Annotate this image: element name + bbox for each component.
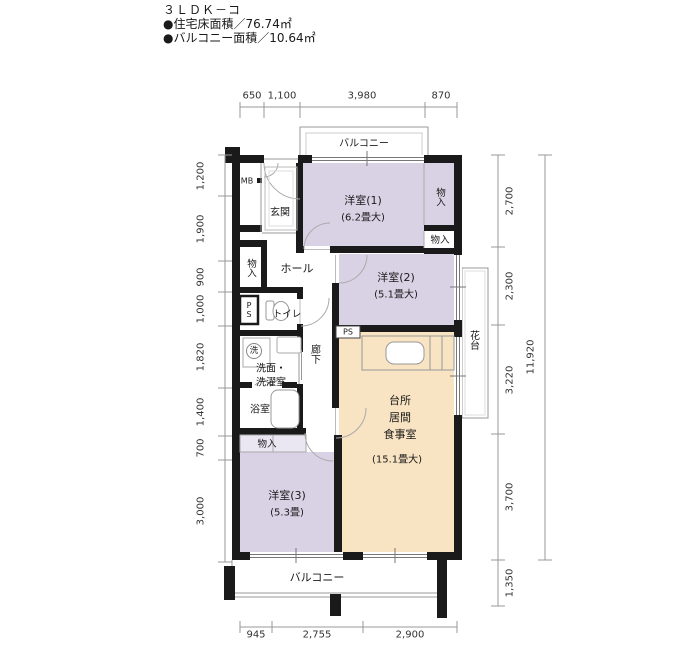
- toilet-door-arc: [301, 298, 329, 326]
- ldk-size: (15.1畳大): [372, 451, 422, 466]
- pipe-space-label: PS: [245, 301, 254, 319]
- dim-top-1100: 1,100: [268, 91, 297, 102]
- fill-ldk: [339, 332, 454, 552]
- dim-right-2700: 2,700: [505, 187, 516, 216]
- pipe-space-kitchen-label: PS: [343, 328, 353, 337]
- dim-line-right: [491, 155, 505, 606]
- balcony-pillar-right: [437, 552, 447, 618]
- wash-basin: [277, 337, 301, 353]
- dim-left-1900: 1,900: [196, 215, 207, 244]
- washer-label: 洗: [246, 343, 262, 359]
- dim-left-1400: 1,400: [196, 398, 207, 427]
- bathtub: [271, 390, 299, 428]
- floor-plan-page: ３ＬＤＫ－コ ●住宅床面積／76.74㎡ ●バルコニー面積／10.64㎡ 650…: [0, 0, 700, 650]
- dim-line-left: [218, 155, 232, 562]
- balcony-area-text: ●バルコニー面積／10.64㎡: [163, 31, 316, 45]
- dim-top-870: 870: [431, 91, 450, 102]
- dim-left-1820: 1,820: [196, 343, 207, 372]
- dim-top-650: 650: [242, 91, 261, 102]
- dim-bottom-945: 945: [246, 630, 265, 641]
- dim-line-right-total: [538, 155, 552, 560]
- dim-line-top: [240, 102, 457, 118]
- dim-bottom-2900: 2,900: [396, 630, 425, 641]
- corridor-label: 廊下: [307, 344, 322, 364]
- dim-left-1200: 1,200: [196, 162, 207, 191]
- genkan-label: 玄関: [270, 204, 290, 219]
- kitchen-sink: [386, 342, 424, 364]
- washroom-label-1: 洗面・: [256, 360, 286, 375]
- dim-bottom-2755: 2,755: [303, 630, 332, 641]
- bath-label: 浴室: [250, 401, 270, 416]
- dim-left-900: 900: [196, 267, 207, 286]
- balcony-top-label: バルコニー: [339, 135, 389, 150]
- closet-y3-label: 物入: [257, 436, 276, 450]
- dim-right-total-11920: 11,920: [526, 340, 537, 375]
- dim-right-3220: 3,220: [505, 366, 516, 395]
- dim-left-700: 700: [196, 438, 207, 457]
- dim-right-2300: 2,300: [505, 272, 516, 301]
- dim-right-3700: 3,700: [505, 483, 516, 512]
- yoshitsu3-size: (5.3畳): [270, 504, 304, 519]
- dim-left-3000: 3,000: [196, 497, 207, 526]
- closet-y1-label: 物入: [432, 188, 446, 207]
- yoshitsu2-size: (5.1畳大): [374, 286, 418, 301]
- dim-left-1000: 1,000: [196, 295, 207, 324]
- closet-y2-label: 物入: [430, 232, 449, 246]
- closet-hall-label: 物入: [243, 259, 257, 278]
- flower-stand-label: 花台: [466, 330, 481, 350]
- dim-right-1350: 1,350: [505, 569, 516, 598]
- yoshitsu3-name: 洋室(3): [268, 487, 306, 503]
- mb-label: MB: [241, 177, 253, 186]
- balcony-bottom-label: バルコニー: [290, 569, 345, 585]
- toilet-label: トイレ: [273, 306, 302, 320]
- dim-line-bottom: [240, 621, 457, 633]
- hall-label: ホール: [281, 260, 314, 276]
- dim-top-3980: 3,980: [348, 91, 377, 102]
- yoshitsu1-name: 洋室(1): [344, 192, 382, 208]
- balcony-pillar-left: [224, 566, 235, 600]
- balcony-pillar-mid: [330, 594, 341, 616]
- floor-area-text: ●住宅床面積／76.74㎡: [163, 17, 316, 31]
- plan-title: ３ＬＤＫ－コ: [163, 3, 316, 17]
- ldk-label-2: 居間: [389, 409, 411, 425]
- yoshitsu1-size: (6.2畳大): [341, 209, 385, 224]
- ldk-label-1: 台所: [389, 392, 411, 408]
- plan-header: ３ＬＤＫ－コ ●住宅床面積／76.74㎡ ●バルコニー面積／10.64㎡: [163, 3, 316, 45]
- yoshitsu2-name: 洋室(2): [377, 269, 415, 285]
- washroom-label-2: 洗濯室: [256, 374, 286, 389]
- ldk-label-3: 食事室: [384, 426, 417, 442]
